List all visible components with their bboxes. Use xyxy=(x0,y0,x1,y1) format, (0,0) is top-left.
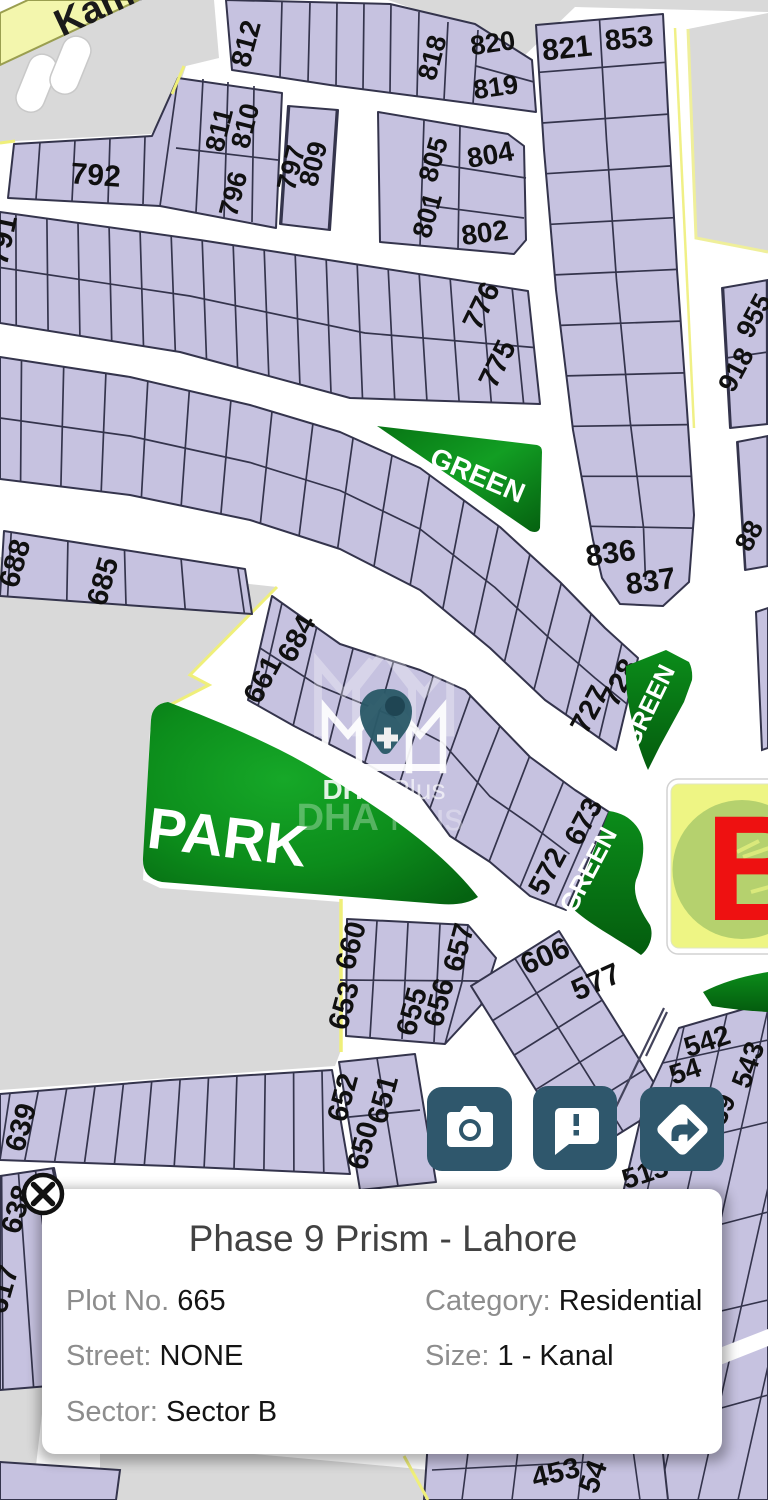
svg-text:Size: 1 - Kanal: Size: 1 - Kanal xyxy=(425,1340,614,1372)
svg-text:792: 792 xyxy=(70,157,122,193)
svg-text:Phase 9 Prism - Lahore: Phase 9 Prism - Lahore xyxy=(189,1218,578,1259)
svg-text:821: 821 xyxy=(540,30,593,68)
svg-text:820: 820 xyxy=(468,25,517,61)
svg-text:819: 819 xyxy=(471,69,520,105)
svg-text:802: 802 xyxy=(459,214,510,251)
svg-text:B: B xyxy=(705,784,768,952)
svg-text:853: 853 xyxy=(603,21,654,58)
svg-text:Sector: Sector B: Sector: Sector B xyxy=(66,1396,277,1428)
svg-text:Category: Residential: Category: Residential xyxy=(425,1285,702,1317)
svg-text:Street: NONE: Street: NONE xyxy=(66,1340,243,1372)
svg-text:DHA Plus: DHA Plus xyxy=(297,797,464,839)
svg-text:Plot No. 665: Plot No. 665 xyxy=(66,1285,226,1317)
svg-text:837: 837 xyxy=(624,562,678,602)
